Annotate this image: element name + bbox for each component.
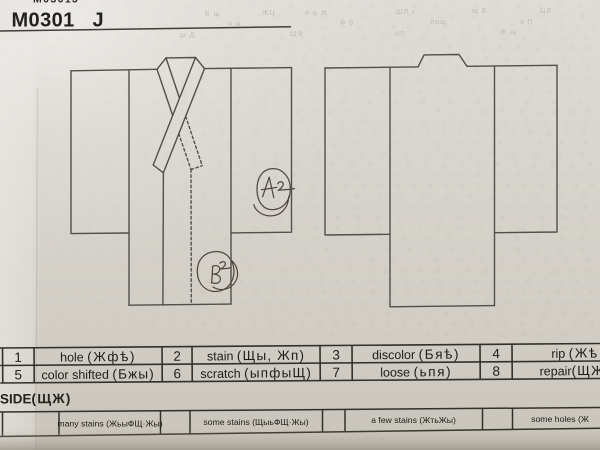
svg-text:3: 3 bbox=[332, 347, 340, 362]
svg-text:ЩФ: ЩФ bbox=[290, 31, 304, 38]
svg-text:Б щ: Б щ bbox=[205, 11, 220, 18]
svg-text:color shifted (Бжы): color shifted (Бжы) bbox=[41, 366, 155, 382]
svg-text:discolor (Бяѣ): discolor (Бяѣ) bbox=[372, 347, 460, 363]
svg-text:M0301J: M0301J bbox=[33, 0, 79, 6]
svg-text:a few stains (ЖтьЖы): a few stains (ЖтьЖы) bbox=[371, 415, 456, 425]
svg-text:5: 5 bbox=[14, 367, 22, 382]
svg-text:ш Д: ш Д bbox=[180, 32, 195, 39]
svg-text:цл: цл bbox=[395, 30, 405, 37]
svg-text:2: 2 bbox=[173, 349, 181, 364]
svg-text:ЦЛ: ЦЛ bbox=[540, 8, 552, 15]
svg-text:4: 4 bbox=[492, 346, 500, 361]
svg-text:б э Л Ж ы э ф э ш Ж: б э Л Ж ы э ф э ш Ж Д я ч ѣ б Д Д л Ч ѣ … bbox=[0, 87, 600, 95]
svg-text:Ж щ: Ж щ bbox=[500, 29, 517, 36]
svg-text:many stains (ЖьыФЩ·Жы): many stains (ЖьыФЩ·Жы) bbox=[57, 418, 162, 428]
svg-text:6: 6 bbox=[173, 366, 181, 381]
svg-text:л Ш я Ш Д ж Ф б: л Ш я Ш Д ж Ф б t t Ч t Д Ч Л Б ц ф Л Ц … bbox=[0, 267, 600, 275]
svg-text:п ц Ж: п ц Ж bbox=[305, 10, 328, 17]
svg-text:rip (Жѣ: rip (Жѣ bbox=[551, 346, 599, 361]
svg-text:some stains (ЩыьФЩ·Жы): some stains (ЩыьФЩ·Жы) bbox=[203, 417, 308, 427]
svg-text:щ Б: щ Б bbox=[472, 8, 487, 15]
svg-text:scratch (ыпфыЩ): scratch (ыпфыЩ) bbox=[200, 365, 312, 381]
svg-text:э П: э П bbox=[520, 19, 534, 26]
svg-text:Ч t э э ѳ Ы Э: Ч t э э ѳ Ы Э П Ц ш ж t ц ш Ф Щ Л Ц я э … bbox=[2, 76, 600, 84]
svg-text:SIDE(ЩЖ): SIDE(ЩЖ) bbox=[0, 391, 72, 407]
svg-text:loose (ьпя): loose (ьпя) bbox=[380, 364, 452, 380]
svg-text:repair(ЩЖ: repair(ЩЖ bbox=[540, 363, 600, 378]
svg-text:M0301: M0301 bbox=[12, 10, 75, 32]
svg-text:лцщ: лцщ bbox=[430, 19, 447, 26]
svg-text:some holes (Ж: some holes (Ж bbox=[531, 414, 589, 424]
svg-text:Ф б: Ф б bbox=[340, 19, 354, 27]
svg-text:hole (Жфѣ): hole (Жфѣ) bbox=[60, 349, 136, 365]
svg-text:stain (Щы, Жп): stain (Щы, Жп) bbox=[207, 348, 305, 364]
svg-text:ШЛ с: ШЛ с bbox=[396, 9, 416, 16]
svg-text:ЖЦ: ЖЦ bbox=[262, 10, 276, 17]
svg-text:1: 1 bbox=[14, 350, 22, 365]
svg-text:J: J bbox=[93, 10, 104, 32]
svg-text:8: 8 bbox=[492, 364, 500, 379]
svg-text:7: 7 bbox=[332, 365, 340, 380]
